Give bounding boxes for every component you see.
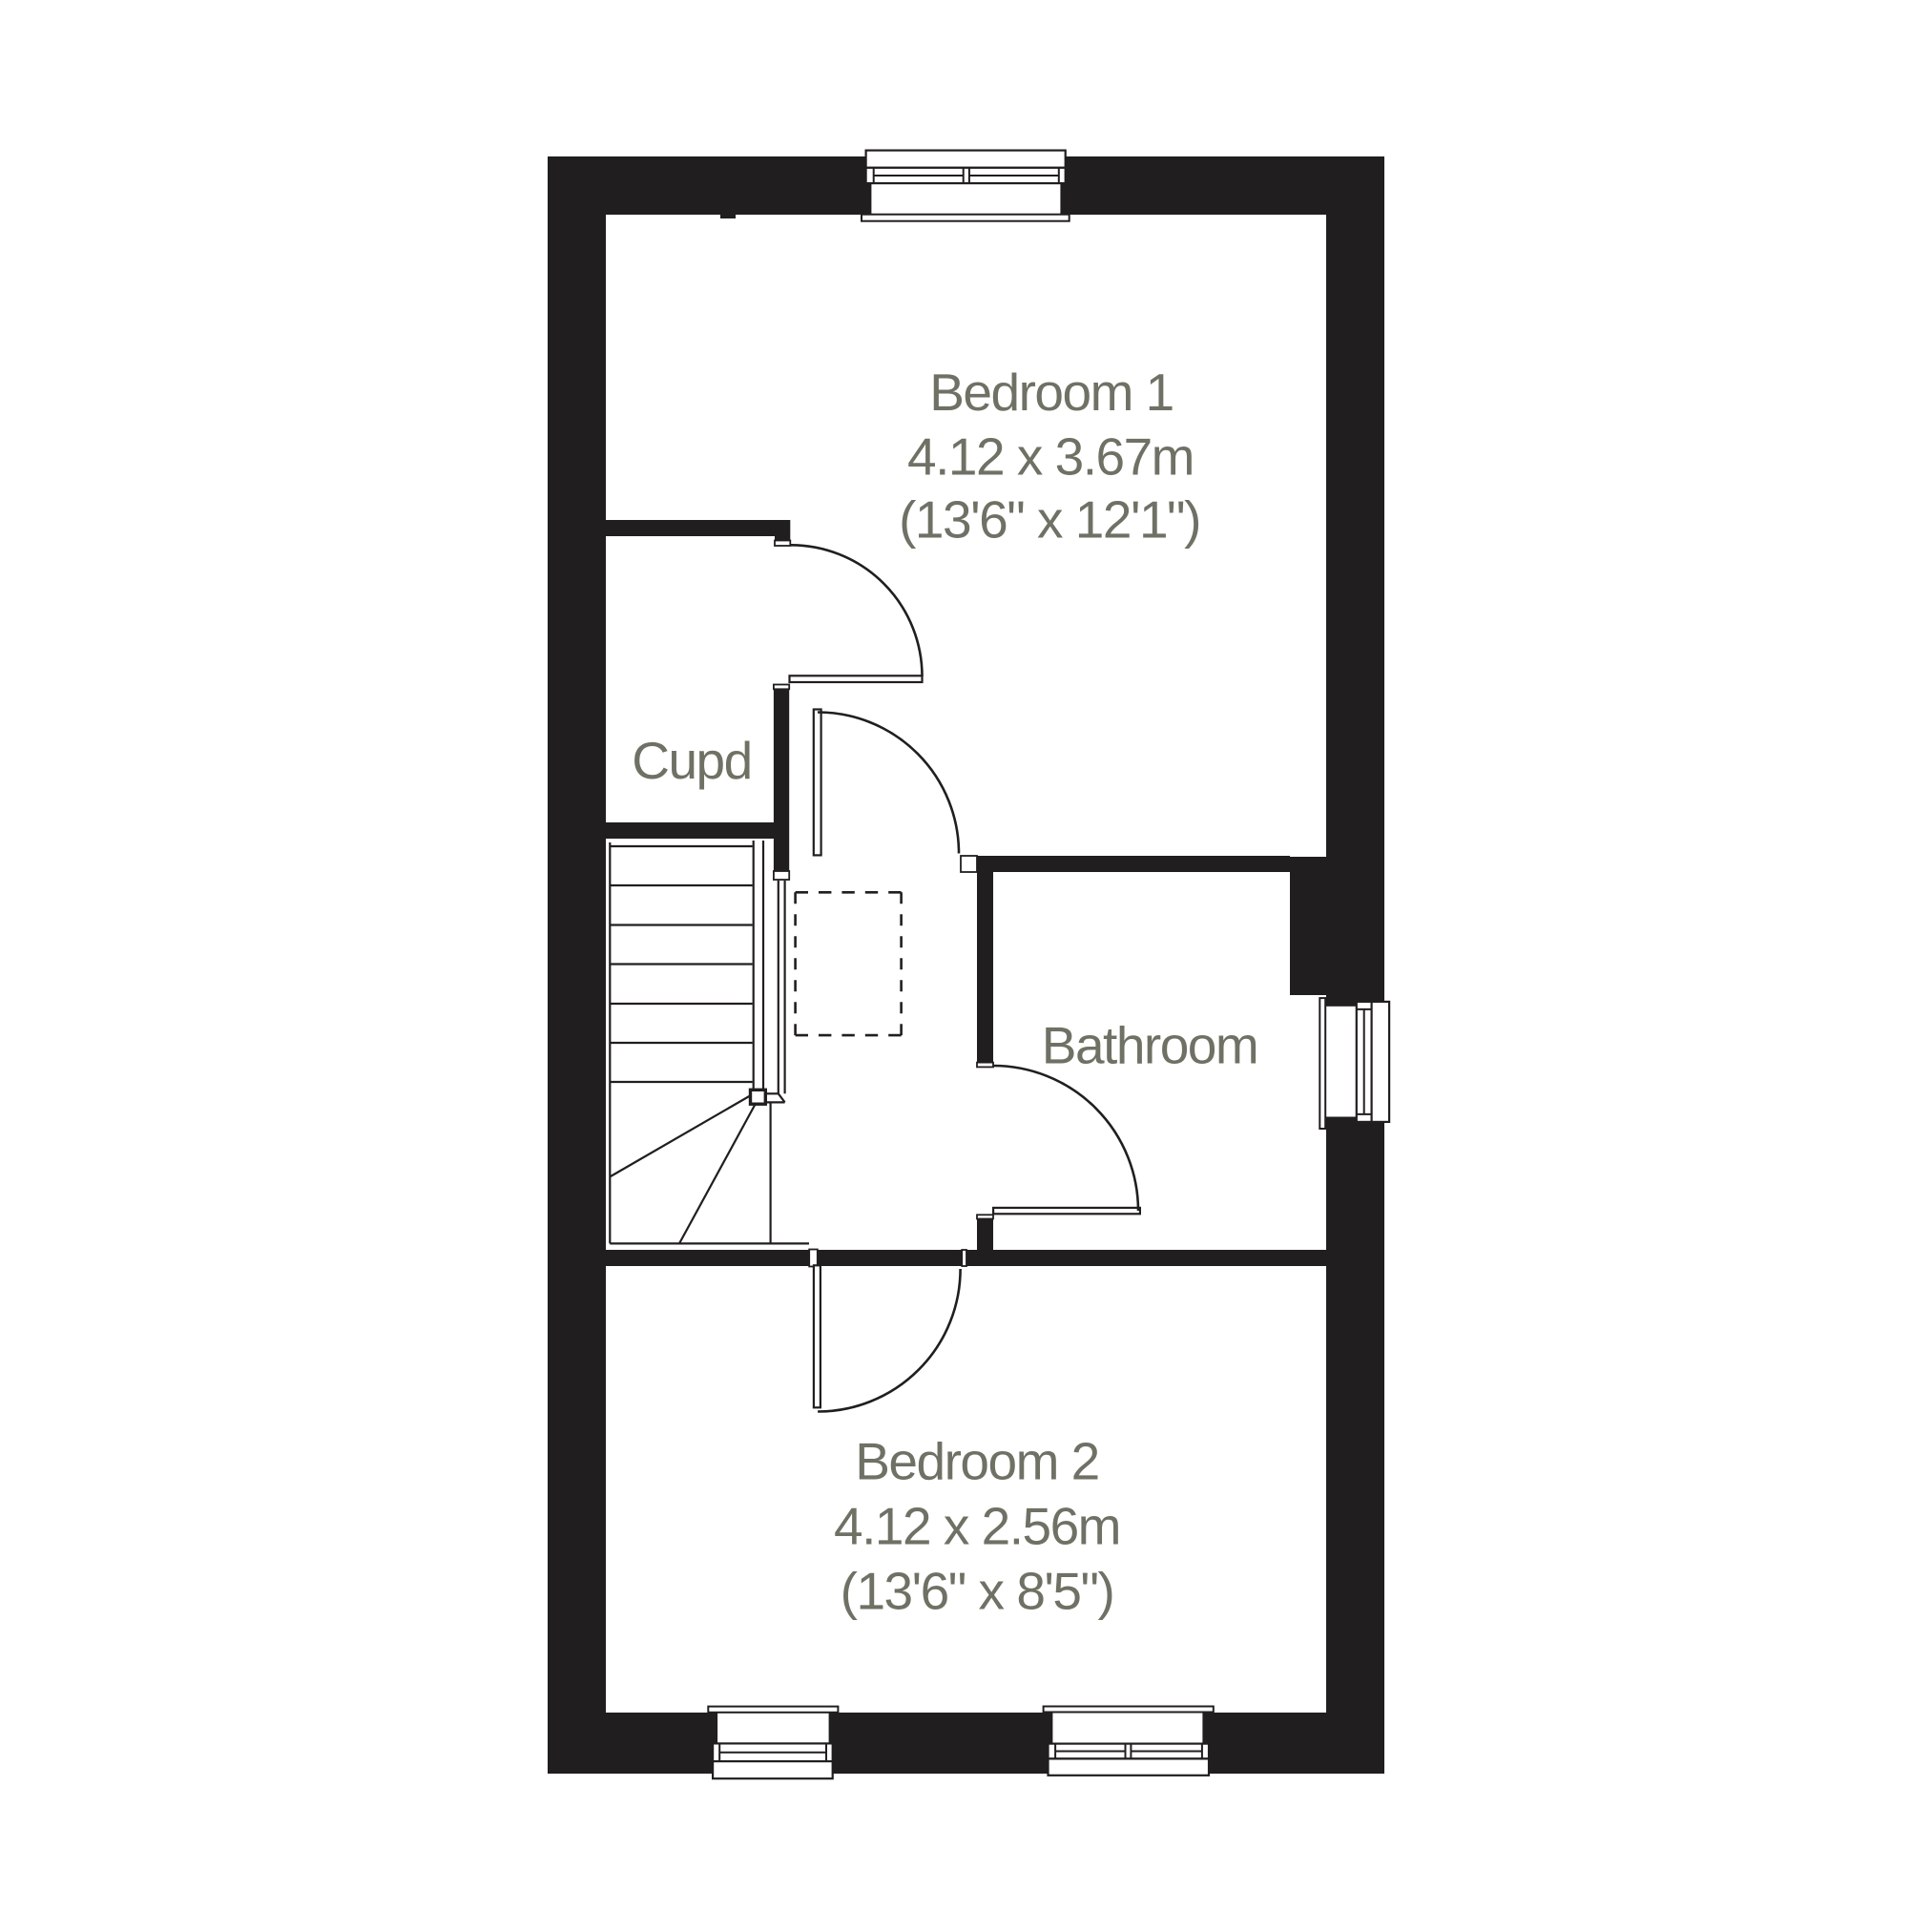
- svg-text:Bedroom 1: Bedroom 1: [929, 363, 1174, 422]
- svg-text:4.12 x 2.56m: 4.12 x 2.56m: [834, 1497, 1120, 1556]
- svg-text:Cupd: Cupd: [632, 731, 751, 790]
- svg-text:(13'6" x 8'5"): (13'6" x 8'5"): [841, 1562, 1114, 1621]
- svg-text:4.12 x 3.67m: 4.12 x 3.67m: [907, 427, 1194, 487]
- svg-text:(13'6" x 12'1"): (13'6" x 12'1"): [899, 490, 1200, 550]
- svg-text:Bathroom: Bathroom: [1042, 1016, 1257, 1075]
- svg-text:Bedroom 2: Bedroom 2: [855, 1432, 1099, 1491]
